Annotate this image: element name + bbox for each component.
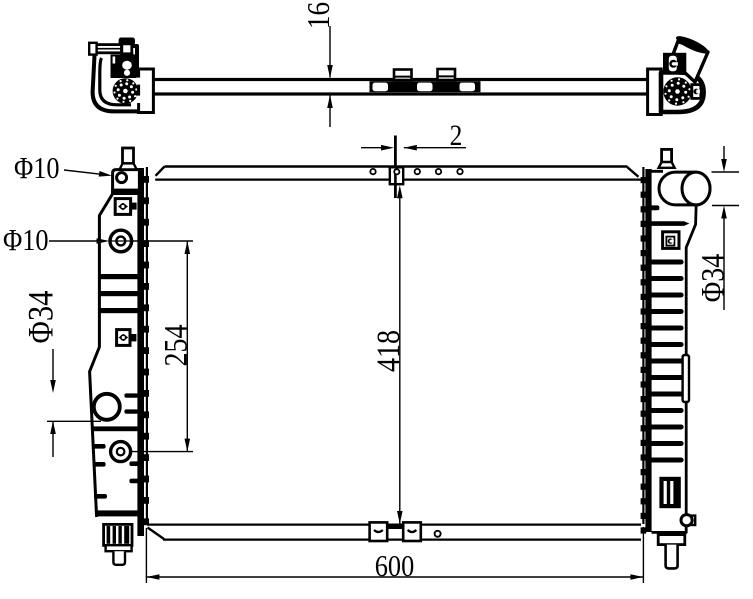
svg-text:2: 2 bbox=[450, 119, 463, 152]
svg-text:Φ34: Φ34 bbox=[694, 254, 731, 303]
svg-text:418: 418 bbox=[370, 330, 407, 372]
svg-text:Φ10: Φ10 bbox=[14, 151, 60, 185]
svg-text:16: 16 bbox=[302, 2, 336, 29]
svg-text:600: 600 bbox=[375, 549, 414, 583]
svg-text:254: 254 bbox=[157, 324, 194, 366]
svg-text:Φ34: Φ34 bbox=[21, 290, 61, 343]
svg-text:Φ10: Φ10 bbox=[3, 223, 49, 257]
